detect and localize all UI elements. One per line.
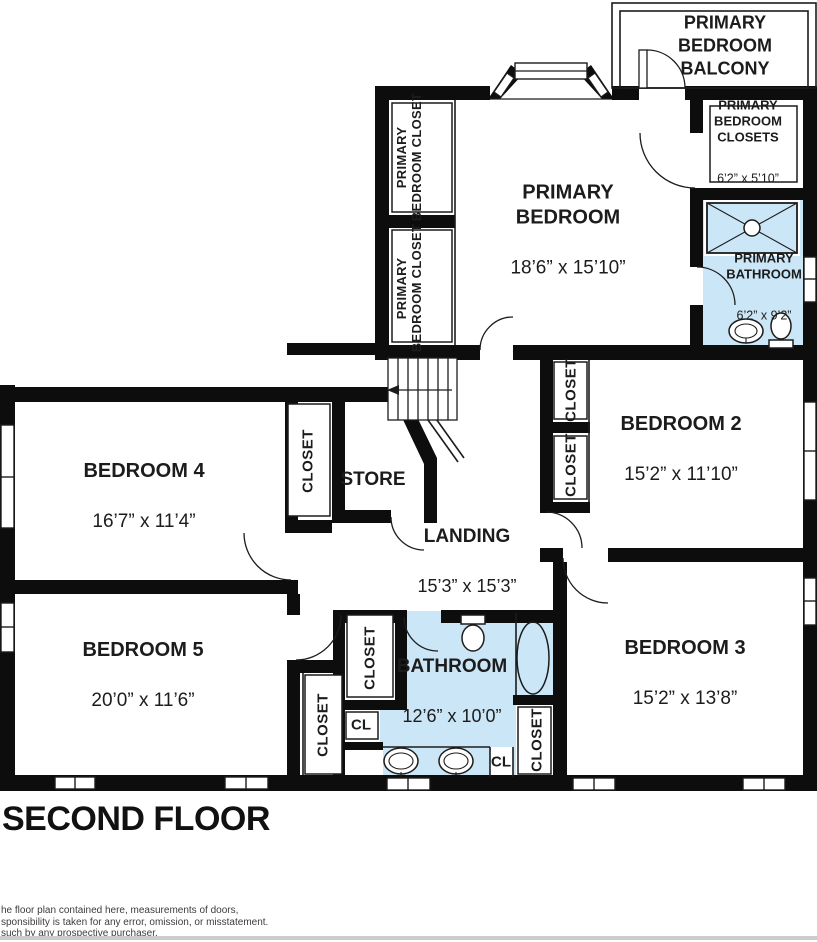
- room-name: PRIMARY BATHROOM: [726, 251, 802, 283]
- primary-bedroom-door-arc: [480, 317, 513, 350]
- room-name: PRIMARY BEDROOM CLOSETS: [714, 98, 782, 146]
- room-label-bedroom3: BEDROOM 3 15’2” x 13’8”: [624, 611, 745, 737]
- closet-label-cl: CL: [491, 754, 511, 771]
- bedroom4-door-arc: [244, 533, 291, 580]
- room-dims: 20’0” x 11’6”: [82, 688, 203, 714]
- closet-label: CLOSET: [563, 358, 580, 422]
- balcony-door-leaf: [639, 50, 647, 88]
- room-label-primary-closets: PRIMARY BEDROOM CLOSETS 6’2” x 5’10”: [714, 73, 782, 212]
- bedroom2-door-arc: [546, 512, 582, 548]
- closet-label: CLOSET: [529, 708, 546, 772]
- closet-label: CLOSET: [563, 433, 580, 497]
- closet-label: CLOSET: [362, 626, 379, 690]
- room-label-bedroom4: BEDROOM 4 16’7” x 11’4”: [83, 434, 204, 560]
- room-label-bedroom2: BEDROOM 2 15’2” x 11’10”: [620, 387, 741, 513]
- room-label-bedroom5: BEDROOM 5 20’0” x 11’6”: [82, 613, 203, 739]
- bedroom3-door-arc: [563, 558, 608, 603]
- room-dims: 16’7” x 11’4”: [83, 509, 204, 535]
- room-name: BEDROOM 3: [624, 636, 745, 661]
- disclaimer-text: he floor plan contained here, measuremen…: [1, 905, 268, 940]
- room-dims: 6’2” x 9’2”: [726, 308, 802, 324]
- room-name: PRIMARY BEDROOM: [510, 181, 625, 231]
- room-label-bathroom: BATHROOM 12’6” x 10’0”: [397, 630, 507, 754]
- room-label-primary-bathroom: PRIMARY BATHROOM 6’2” x 9’2”: [726, 226, 802, 349]
- room-label-store: STORE: [340, 443, 405, 517]
- disclaimer-line: sponsibility is taken for any error, omi…: [1, 917, 268, 929]
- room-name: PRIMARY BEDROOM BALCONY: [678, 12, 772, 81]
- room-name: STORE: [340, 468, 405, 492]
- room-name: BEDROOM 2: [620, 412, 741, 437]
- room-name: BEDROOM 4: [83, 459, 204, 484]
- floor-plan-page: PRIMARY BEDROOM BALCONY PRIMARY BEDROOM …: [0, 0, 817, 942]
- stairs: [387, 358, 457, 420]
- room-name: LANDING: [417, 525, 516, 549]
- floor-title: SECOND FLOOR: [2, 800, 270, 839]
- room-label-landing: LANDING 15’3” x 15’3”: [417, 500, 516, 624]
- closet-label-cl: CL: [351, 717, 371, 734]
- room-dims: 18’6” x 15’10”: [510, 256, 625, 282]
- closet-label: CLOSET: [300, 429, 317, 493]
- room-dims: 6’2” x 5’10”: [714, 171, 782, 187]
- closet-label: CLOSET: [315, 693, 332, 757]
- room-dims: 12’6” x 10’0”: [397, 704, 507, 729]
- room-name: BATHROOM: [397, 655, 507, 679]
- page-bottom-divider: [0, 936, 817, 940]
- room-dims: 15’3” x 15’3”: [417, 574, 516, 599]
- disclaimer-line: he floor plan contained here, measuremen…: [1, 905, 268, 917]
- room-label-primary-closet-lower: PRIMARY BEDROOM CLOSET: [394, 224, 424, 352]
- room-name: BEDROOM 5: [82, 638, 203, 663]
- room-dims: 15’2” x 13’8”: [624, 686, 745, 712]
- room-dims: 15’2” x 11’10”: [620, 462, 741, 488]
- primary-closets-door-arc: [640, 133, 695, 188]
- room-label-primary-closet-upper: PRIMARY BEDROOM CLOSET: [394, 93, 424, 221]
- bay-window: [488, 63, 614, 99]
- room-label-primary-bedroom: PRIMARY BEDROOM 18’6” x 15’10”: [510, 156, 625, 307]
